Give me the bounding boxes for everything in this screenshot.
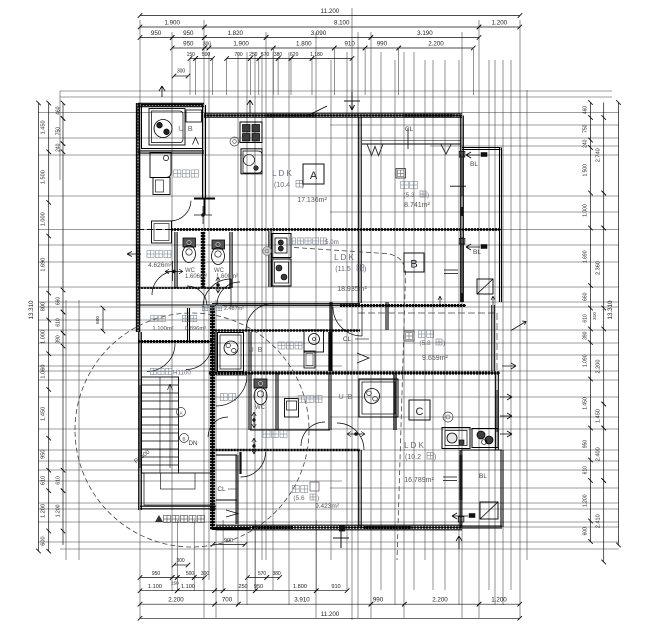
svg-text:): ) xyxy=(427,192,429,199)
svg-text:11.200: 11.200 xyxy=(321,611,340,618)
svg-text:(11.5: (11.5 xyxy=(335,266,351,273)
svg-text:750: 750 xyxy=(583,124,589,133)
svg-text:CL: CL xyxy=(217,486,226,493)
svg-text:): ) xyxy=(434,454,436,461)
svg-text:570: 570 xyxy=(261,52,270,58)
svg-text:3.910: 3.910 xyxy=(294,597,310,604)
svg-text:1.500: 1.500 xyxy=(583,164,589,177)
svg-text:1.450: 1.450 xyxy=(596,409,602,423)
svg-text:BL: BL xyxy=(473,249,481,256)
svg-text:610: 610 xyxy=(583,314,589,323)
svg-text:1.200: 1.200 xyxy=(41,504,47,518)
svg-text:570: 570 xyxy=(258,571,267,577)
svg-text:): ) xyxy=(364,266,366,273)
svg-text:610: 610 xyxy=(583,466,589,475)
svg-text:620: 620 xyxy=(290,52,299,58)
svg-text:8.741m²: 8.741m² xyxy=(404,202,430,209)
svg-text:2.410: 2.410 xyxy=(596,514,602,528)
svg-text:16.789m²: 16.789m² xyxy=(404,477,434,484)
svg-text:950: 950 xyxy=(183,41,194,48)
svg-text:13.310: 13.310 xyxy=(607,300,614,319)
svg-text:DN: DN xyxy=(189,441,198,447)
svg-text:1.500: 1.500 xyxy=(41,170,47,184)
svg-text:750: 750 xyxy=(56,127,62,136)
svg-text:U B: U B xyxy=(339,394,354,401)
svg-text:(5.6: (5.6 xyxy=(293,495,305,502)
svg-text:1.200: 1.200 xyxy=(491,597,507,604)
svg-text:500: 500 xyxy=(202,52,211,58)
svg-text:390: 390 xyxy=(56,335,62,344)
svg-text:2.200: 2.200 xyxy=(596,360,602,374)
svg-text:1.060: 1.060 xyxy=(41,365,47,379)
svg-text:700: 700 xyxy=(222,597,233,604)
svg-text:600: 600 xyxy=(41,536,47,545)
svg-text:950: 950 xyxy=(152,571,161,577)
svg-text:1.180: 1.180 xyxy=(310,52,323,58)
svg-text:L D K: L D K xyxy=(404,441,424,450)
svg-text:300: 300 xyxy=(203,42,212,48)
svg-text:950: 950 xyxy=(254,584,263,590)
svg-text:4.626m²: 4.626m² xyxy=(148,262,173,269)
svg-text:CL: CL xyxy=(343,336,352,343)
svg-text:BL: BL xyxy=(479,473,487,480)
svg-text:H1100: H1100 xyxy=(173,370,191,377)
svg-text:1.090: 1.090 xyxy=(583,354,589,367)
svg-text:1.000: 1.000 xyxy=(41,212,47,226)
svg-text:250: 250 xyxy=(238,584,247,590)
svg-text:1.100m²: 1.100m² xyxy=(152,326,173,332)
svg-text:910: 910 xyxy=(345,41,356,48)
svg-text:13.310: 13.310 xyxy=(28,300,35,319)
svg-text:B: B xyxy=(410,259,417,271)
svg-text:1.690: 1.690 xyxy=(583,250,589,263)
svg-text:380: 380 xyxy=(272,571,281,577)
svg-text:2.400: 2.400 xyxy=(596,447,602,461)
svg-text:): ) xyxy=(317,495,319,502)
svg-text:2.200: 2.200 xyxy=(432,597,448,604)
svg-text:150: 150 xyxy=(171,581,179,586)
svg-text:18.935m²: 18.935m² xyxy=(337,286,367,293)
svg-text:700: 700 xyxy=(234,52,243,58)
svg-text:1.000: 1.000 xyxy=(583,204,589,217)
svg-text:1.606m²: 1.606m² xyxy=(185,274,207,280)
svg-text:U B: U B xyxy=(178,124,194,133)
svg-text:9.659m²: 9.659m² xyxy=(422,355,448,362)
svg-text:240: 240 xyxy=(56,143,62,152)
svg-text:1.820: 1.820 xyxy=(228,30,244,37)
svg-text:990: 990 xyxy=(377,41,388,48)
svg-text:3.090: 3.090 xyxy=(311,30,327,37)
svg-text:500: 500 xyxy=(186,571,195,577)
svg-text:1.100: 1.100 xyxy=(181,584,195,590)
svg-text:2.487m²: 2.487m² xyxy=(224,306,244,312)
svg-text:1.800: 1.800 xyxy=(293,584,307,590)
svg-text:610: 610 xyxy=(41,476,47,485)
svg-text:2.200: 2.200 xyxy=(168,597,184,604)
svg-text:BL: BL xyxy=(470,161,478,168)
svg-text:2.200: 2.200 xyxy=(428,41,444,48)
svg-text:800: 800 xyxy=(41,302,47,311)
svg-text:610: 610 xyxy=(56,476,62,485)
svg-text:300: 300 xyxy=(201,571,210,577)
svg-text:L D K: L D K xyxy=(334,253,354,262)
svg-text:660: 660 xyxy=(583,292,589,301)
svg-text:150: 150 xyxy=(187,52,196,58)
svg-text:300: 300 xyxy=(176,558,185,564)
svg-text:(10.4: (10.4 xyxy=(274,182,290,189)
svg-text:5.0m: 5.0m xyxy=(325,239,339,246)
svg-text:C: C xyxy=(416,406,424,418)
svg-text:1.900: 1.900 xyxy=(233,41,249,48)
svg-text:A: A xyxy=(179,411,182,416)
svg-text:1.690: 1.690 xyxy=(41,258,47,272)
svg-text:2.740: 2.740 xyxy=(596,148,602,162)
svg-text:17.136m²: 17.136m² xyxy=(297,197,327,204)
svg-text:300: 300 xyxy=(177,69,186,75)
svg-text:1.800: 1.800 xyxy=(296,41,312,48)
svg-text:600: 600 xyxy=(583,527,589,536)
svg-text:1.200: 1.200 xyxy=(583,494,589,507)
svg-text:1.600m²: 1.600m² xyxy=(216,274,238,280)
svg-text:1.900: 1.900 xyxy=(164,20,180,27)
svg-text:U B: U B xyxy=(249,347,264,354)
svg-text:WC: WC xyxy=(255,405,266,411)
svg-text:380: 380 xyxy=(274,52,283,58)
svg-text:(5.8: (5.8 xyxy=(419,340,431,347)
svg-text:(5.3: (5.3 xyxy=(403,192,415,199)
svg-text:2.360: 2.360 xyxy=(596,261,602,275)
svg-text:390: 390 xyxy=(583,331,589,340)
svg-text:460: 460 xyxy=(583,106,589,115)
svg-text:1.200: 1.200 xyxy=(56,504,62,517)
svg-text:0.896m²: 0.896m² xyxy=(185,326,206,332)
svg-text:A: A xyxy=(310,170,318,182)
svg-text:9.423m²: 9.423m² xyxy=(315,503,340,510)
svg-text:910: 910 xyxy=(331,584,340,590)
svg-text:1.450: 1.450 xyxy=(41,407,47,421)
svg-text:L D K: L D K xyxy=(272,169,292,178)
svg-text:1.100: 1.100 xyxy=(148,584,162,590)
svg-text:3.190: 3.190 xyxy=(417,30,433,37)
svg-text:1.450: 1.450 xyxy=(583,397,589,410)
svg-text:B: B xyxy=(182,437,185,442)
svg-text:950: 950 xyxy=(183,30,194,37)
svg-text:1.200: 1.200 xyxy=(492,20,508,27)
svg-text:460: 460 xyxy=(56,106,62,115)
svg-text:950: 950 xyxy=(151,30,162,37)
svg-text:600: 600 xyxy=(95,316,100,324)
svg-text:990: 990 xyxy=(373,597,384,604)
svg-text:310: 310 xyxy=(592,312,597,320)
svg-text:610: 610 xyxy=(56,318,62,327)
svg-text:(10.2: (10.2 xyxy=(405,454,421,461)
svg-text:240: 240 xyxy=(583,139,589,148)
svg-text:950: 950 xyxy=(583,440,589,449)
svg-text:950: 950 xyxy=(41,450,47,459)
svg-text:660: 660 xyxy=(56,297,62,306)
svg-text:): ) xyxy=(443,340,445,347)
svg-text:8.100: 8.100 xyxy=(334,20,350,27)
svg-text:1.000: 1.000 xyxy=(41,330,47,344)
svg-text:11.200: 11.200 xyxy=(321,8,340,15)
svg-text:1.450: 1.450 xyxy=(41,120,47,134)
svg-text:250: 250 xyxy=(249,52,258,58)
svg-text:CL: CL xyxy=(405,126,414,133)
